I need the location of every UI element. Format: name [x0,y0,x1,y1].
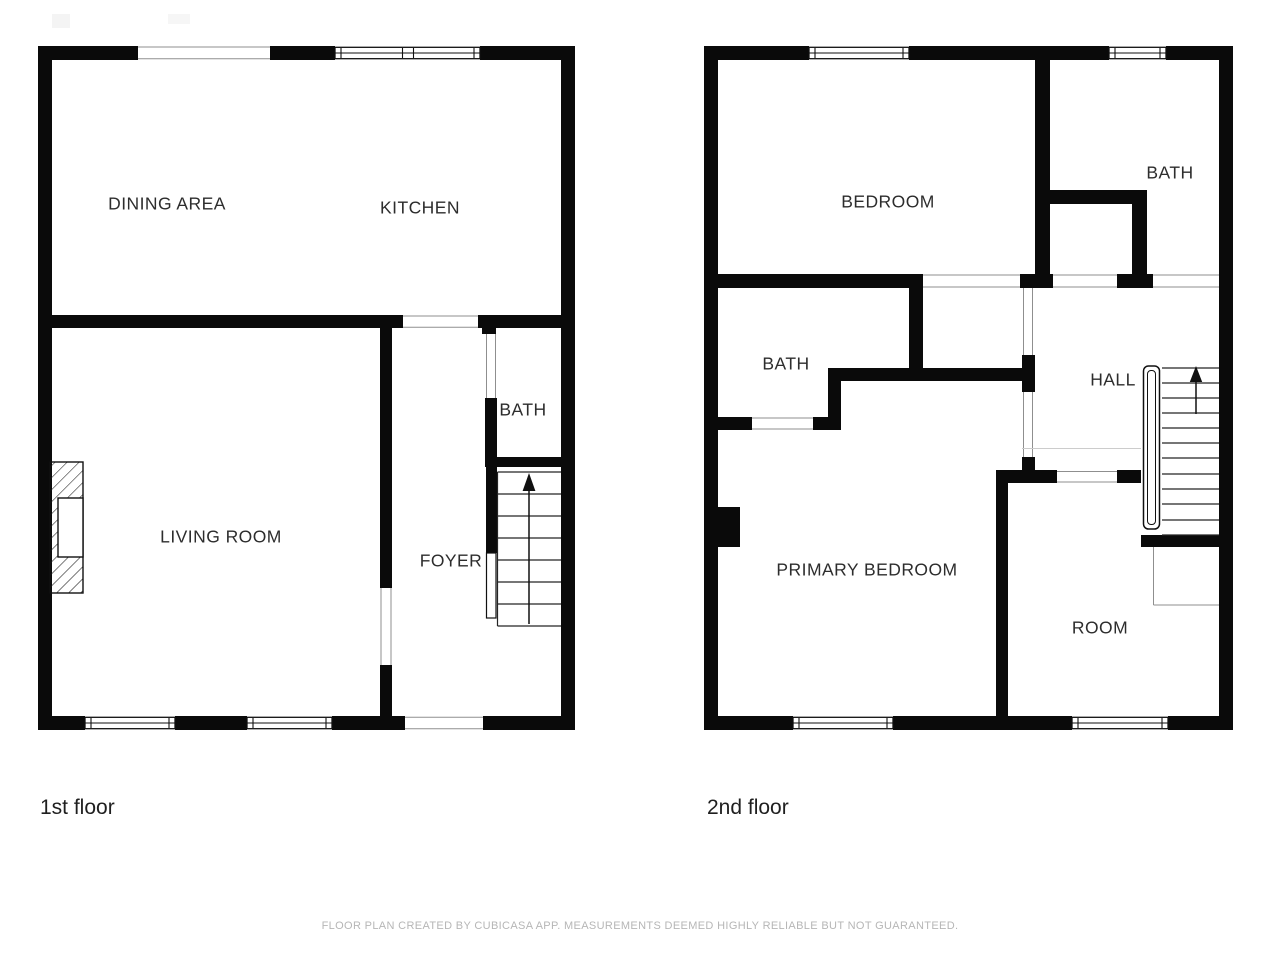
room-label-kitchen: KITCHEN [380,198,460,219]
floor-plan-drawing [0,0,1280,960]
room-label-bath-left: BATH [762,354,809,375]
stairs-up-arrow-icon [523,473,536,624]
stair-handrail [1144,366,1160,529]
window-icon [85,717,175,728]
floor1-interior-walls [38,315,561,716]
window-icon [793,717,893,728]
floor1-opening-lines [138,47,496,729]
window-icon [1109,47,1166,58]
floor1-plan [38,46,575,730]
room-label-bath-floor1: BATH [499,400,546,421]
watermark [52,14,190,28]
floor1-title: 1st floor [40,796,115,820]
stair-treads [1162,368,1219,535]
floor2-title: 2nd floor [707,796,789,820]
room-label-bedroom: BEDROOM [841,192,935,213]
floor1-staircase [487,472,562,626]
room-label-hall: HALL [1090,370,1136,391]
window-icon [809,47,909,58]
floor2-staircase [1144,366,1220,535]
floor1-windows [85,47,480,728]
chimney-block [718,507,740,547]
floor-plan-page: DINING AREA KITCHEN BATH LIVING ROOM FOY… [0,0,1280,960]
stairs-up-arrow-icon [1190,366,1202,414]
room-label-room: ROOM [1072,618,1128,639]
fireplace-icon [50,462,83,593]
room-label-bath-right: BATH [1146,163,1193,184]
room-label-foyer: FOYER [420,551,483,572]
window-icon [1072,717,1168,728]
room-label-dining-area: DINING AREA [108,194,226,215]
window-icon [335,47,480,58]
floor2-plan [704,46,1233,730]
footer-disclaimer: FLOOR PLAN CREATED BY CUBICASA APP. MEAS… [0,920,1280,932]
door-leaf [487,553,497,618]
room-label-primary-bedroom: PRIMARY BEDROOM [776,560,957,581]
room-label-living-room: LIVING ROOM [160,527,282,548]
floor1-exterior-walls [38,46,575,730]
window-icon [247,717,332,728]
